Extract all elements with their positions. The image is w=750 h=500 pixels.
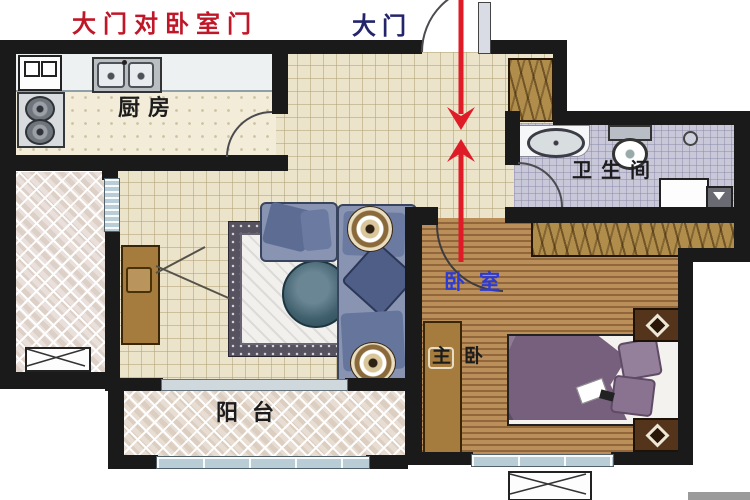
- fridge-compartment: [24, 61, 40, 77]
- air-conditioner: [508, 471, 592, 500]
- pillow: [617, 337, 663, 381]
- refrigerator: [18, 55, 62, 91]
- floor-drain: [683, 131, 698, 146]
- floor-plan: 大门对卧室门 大门 厨房 卫生间 卧室 主卧 阳台: [0, 0, 750, 500]
- wall: [505, 111, 520, 165]
- wall: [692, 248, 750, 262]
- washbasin: [527, 128, 585, 158]
- side-table: [347, 206, 393, 252]
- nightstand-ornament: [645, 313, 669, 337]
- wall: [405, 452, 473, 465]
- label-bedroom: 卧室: [444, 272, 514, 293]
- wall: [734, 111, 750, 261]
- wall: [105, 228, 120, 380]
- sofa-cushion: [300, 209, 332, 252]
- gas-stove: [17, 92, 65, 148]
- wall: [345, 378, 422, 391]
- nightstand: [633, 418, 682, 452]
- wall: [108, 378, 124, 469]
- wall: [505, 207, 750, 223]
- bed-blanket: [509, 336, 627, 420]
- wall: [0, 372, 110, 389]
- wall: [611, 452, 693, 465]
- kitchen-sink: [92, 57, 162, 93]
- wall: [553, 111, 750, 125]
- tv-cabinet: [121, 245, 160, 345]
- side-balcony-floor: [16, 172, 108, 374]
- label-master-bedroom: 主卧: [432, 347, 496, 366]
- label-kitchen: 厨房: [118, 98, 178, 120]
- stove-burner: [25, 119, 55, 145]
- nightstand-ornament: [645, 423, 669, 447]
- nightstand: [633, 308, 682, 342]
- air-conditioner: [25, 347, 91, 372]
- window-balcony: [156, 456, 370, 469]
- basket-mark: [713, 192, 725, 200]
- washing-machine: [659, 178, 709, 210]
- label-entrance: 大门: [352, 14, 412, 38]
- wall: [272, 52, 288, 114]
- label-warning: 大门对卧室门: [72, 12, 258, 36]
- fridge-compartment: [41, 61, 57, 77]
- tv-screen: [126, 267, 152, 293]
- label-bathroom: 卫生间: [572, 160, 659, 180]
- window-living-west: [104, 178, 120, 232]
- entrance-door-panel: [478, 2, 491, 54]
- pillow: [610, 375, 656, 418]
- label-balcony: 阳台: [216, 403, 288, 425]
- sink-basin: [97, 62, 125, 88]
- wall: [0, 40, 16, 389]
- window-bedroom: [471, 454, 614, 467]
- wall: [366, 455, 408, 469]
- wall: [405, 207, 422, 465]
- balcony-sliding-door: [161, 379, 348, 391]
- dresser: [423, 321, 462, 462]
- wall: [678, 248, 693, 465]
- wall: [0, 40, 422, 54]
- faucet: [122, 60, 127, 65]
- watermark-strip: [688, 492, 750, 500]
- sink-basin: [128, 62, 154, 88]
- wall: [0, 155, 288, 171]
